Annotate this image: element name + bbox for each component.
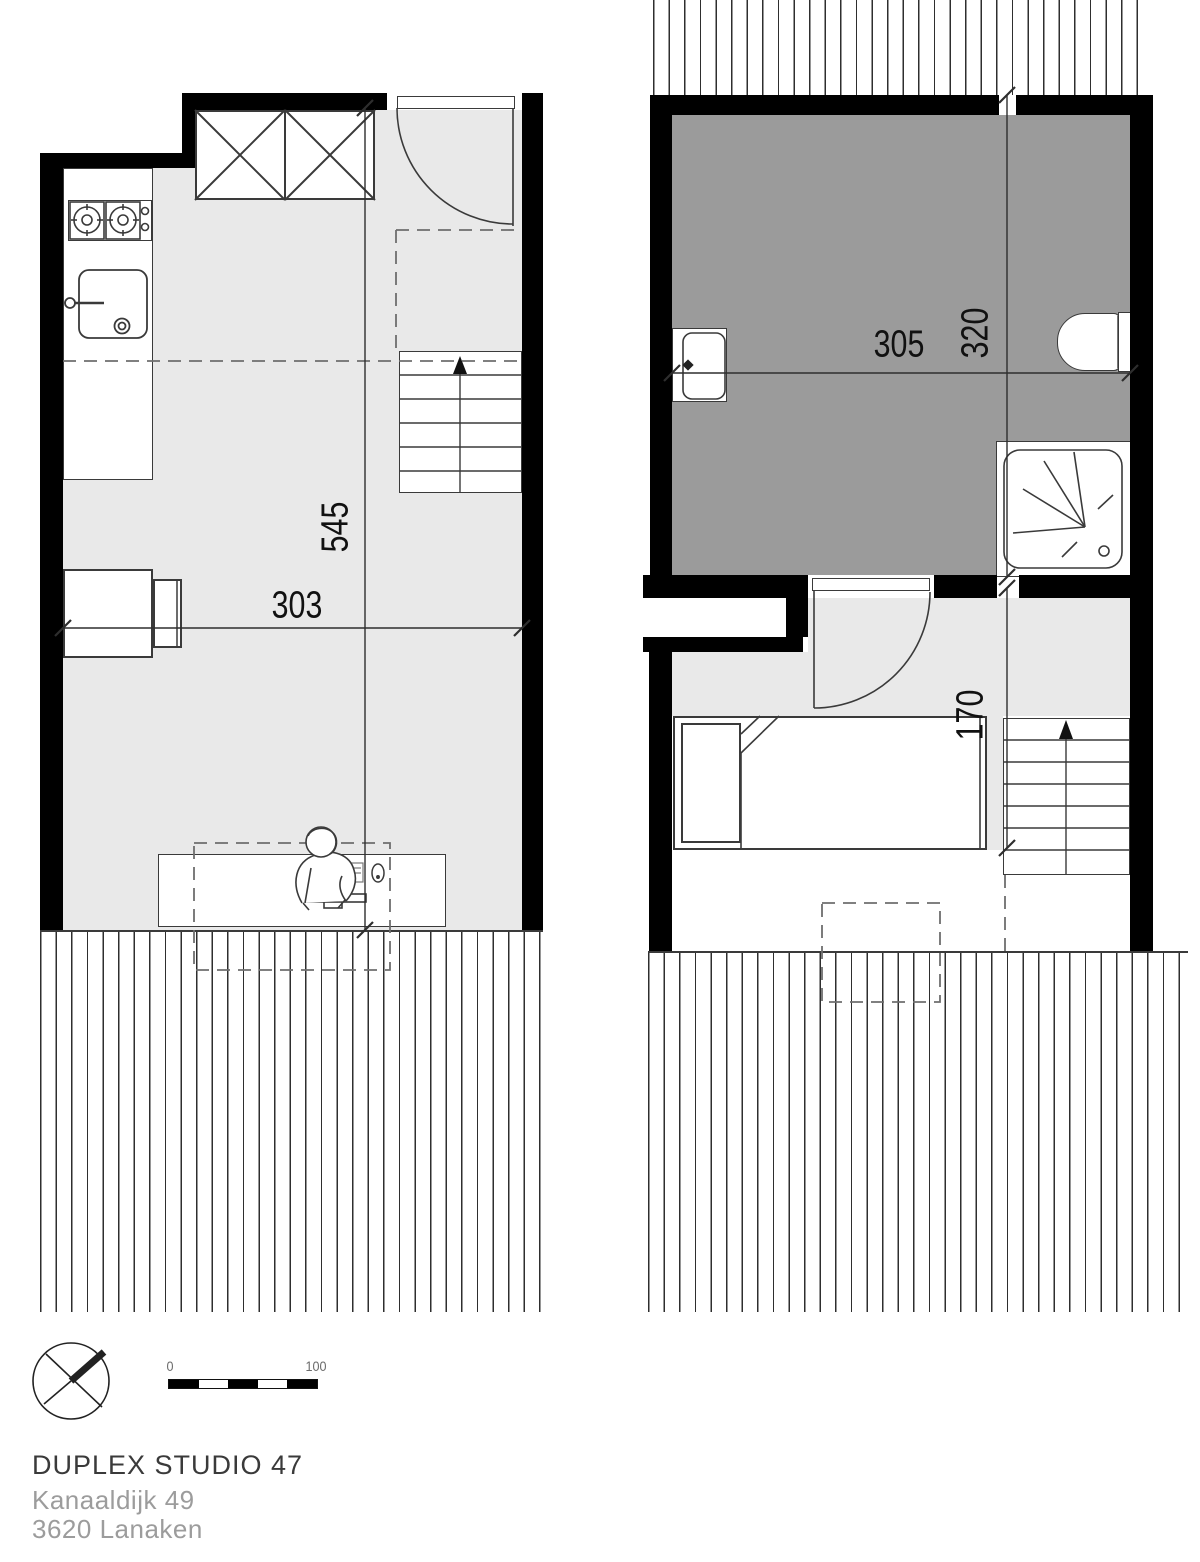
bed-upper-details [741, 716, 980, 850]
address-line-2: 3620 Lanaken [32, 1515, 303, 1544]
washbasin-icon [682, 333, 725, 399]
floor-plan-sheet: 545 303 305 320 170 0 100 DUPLEX STUDIO … [0, 0, 1200, 1562]
scale-bar [168, 1379, 318, 1389]
scale-bar-start: 0 [166, 1358, 173, 1374]
dimension-ticks-ground [55, 100, 530, 938]
north-arrow-icon [33, 1343, 109, 1419]
dim-label-303: 303 [272, 585, 323, 628]
scale-bar-end: 100 [305, 1358, 326, 1374]
address-line-1: Kanaaldijk 49 [32, 1486, 303, 1515]
dim-label-305: 305 [874, 324, 925, 367]
dashed-void-lines-upper [822, 875, 1005, 1002]
kitchen-sink-icon [65, 270, 147, 338]
entry-door-swing [397, 108, 513, 226]
mouse-icon [372, 864, 384, 882]
stairs-upper-treads [1003, 732, 1130, 875]
person-figure [296, 827, 355, 910]
stove-burners-icon [70, 202, 149, 239]
stairs-ground-treads [399, 366, 522, 493]
dimension-lines-ground [63, 108, 522, 930]
title-block: DUPLEX STUDIO 47 Kanaaldijk 49 3620 Lana… [32, 1450, 303, 1544]
stairs-upper-arrow [1059, 720, 1073, 739]
dim-label-320: 320 [955, 308, 998, 359]
stairs-ground-arrow [453, 356, 467, 374]
dim-label-170: 170 [950, 690, 993, 741]
project-title: DUPLEX STUDIO 47 [32, 1450, 303, 1481]
wardrobe-x-marks [195, 110, 375, 200]
dim-label-545: 545 [315, 502, 358, 553]
shower-icon [1004, 450, 1122, 568]
interior-door-swing [814, 591, 930, 708]
